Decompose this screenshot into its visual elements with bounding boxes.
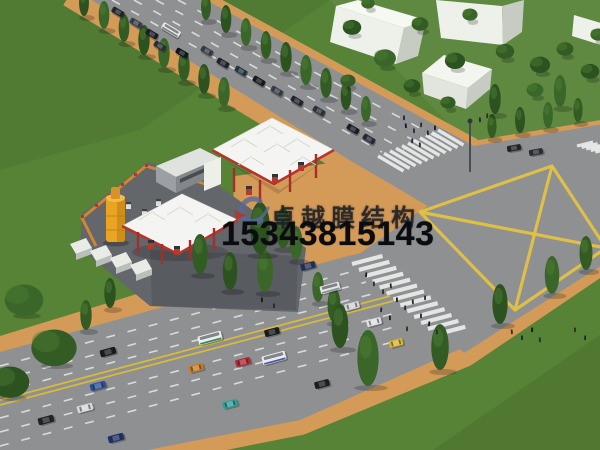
pedestrian (419, 142, 421, 147)
pedestrian (427, 130, 429, 135)
pedestrian (404, 305, 406, 310)
pedestrian (584, 335, 586, 340)
pedestrian (396, 297, 398, 302)
pedestrian (479, 117, 481, 122)
pedestrian (521, 335, 523, 340)
pedestrian (539, 337, 541, 342)
pedestrian (424, 295, 426, 300)
pedestrian (273, 303, 275, 308)
pedestrian (420, 313, 422, 318)
pedestrian (411, 138, 413, 143)
pedestrian (406, 326, 408, 331)
pedestrian (428, 321, 430, 326)
pedestrian (574, 327, 576, 332)
pedestrian (412, 299, 414, 304)
pedestrian (373, 281, 375, 286)
scene-3d-render (0, 0, 600, 450)
pedestrian (382, 289, 384, 294)
pedestrian (434, 125, 436, 130)
render-canvas: 卓越膜结构 15343815143 (0, 0, 600, 450)
pedestrian (436, 329, 438, 334)
pedestrian (413, 128, 415, 133)
pedestrian (531, 327, 533, 332)
pedestrian (389, 315, 391, 320)
pedestrian (420, 122, 422, 127)
pedestrian (261, 297, 263, 302)
pedestrian (403, 115, 405, 120)
